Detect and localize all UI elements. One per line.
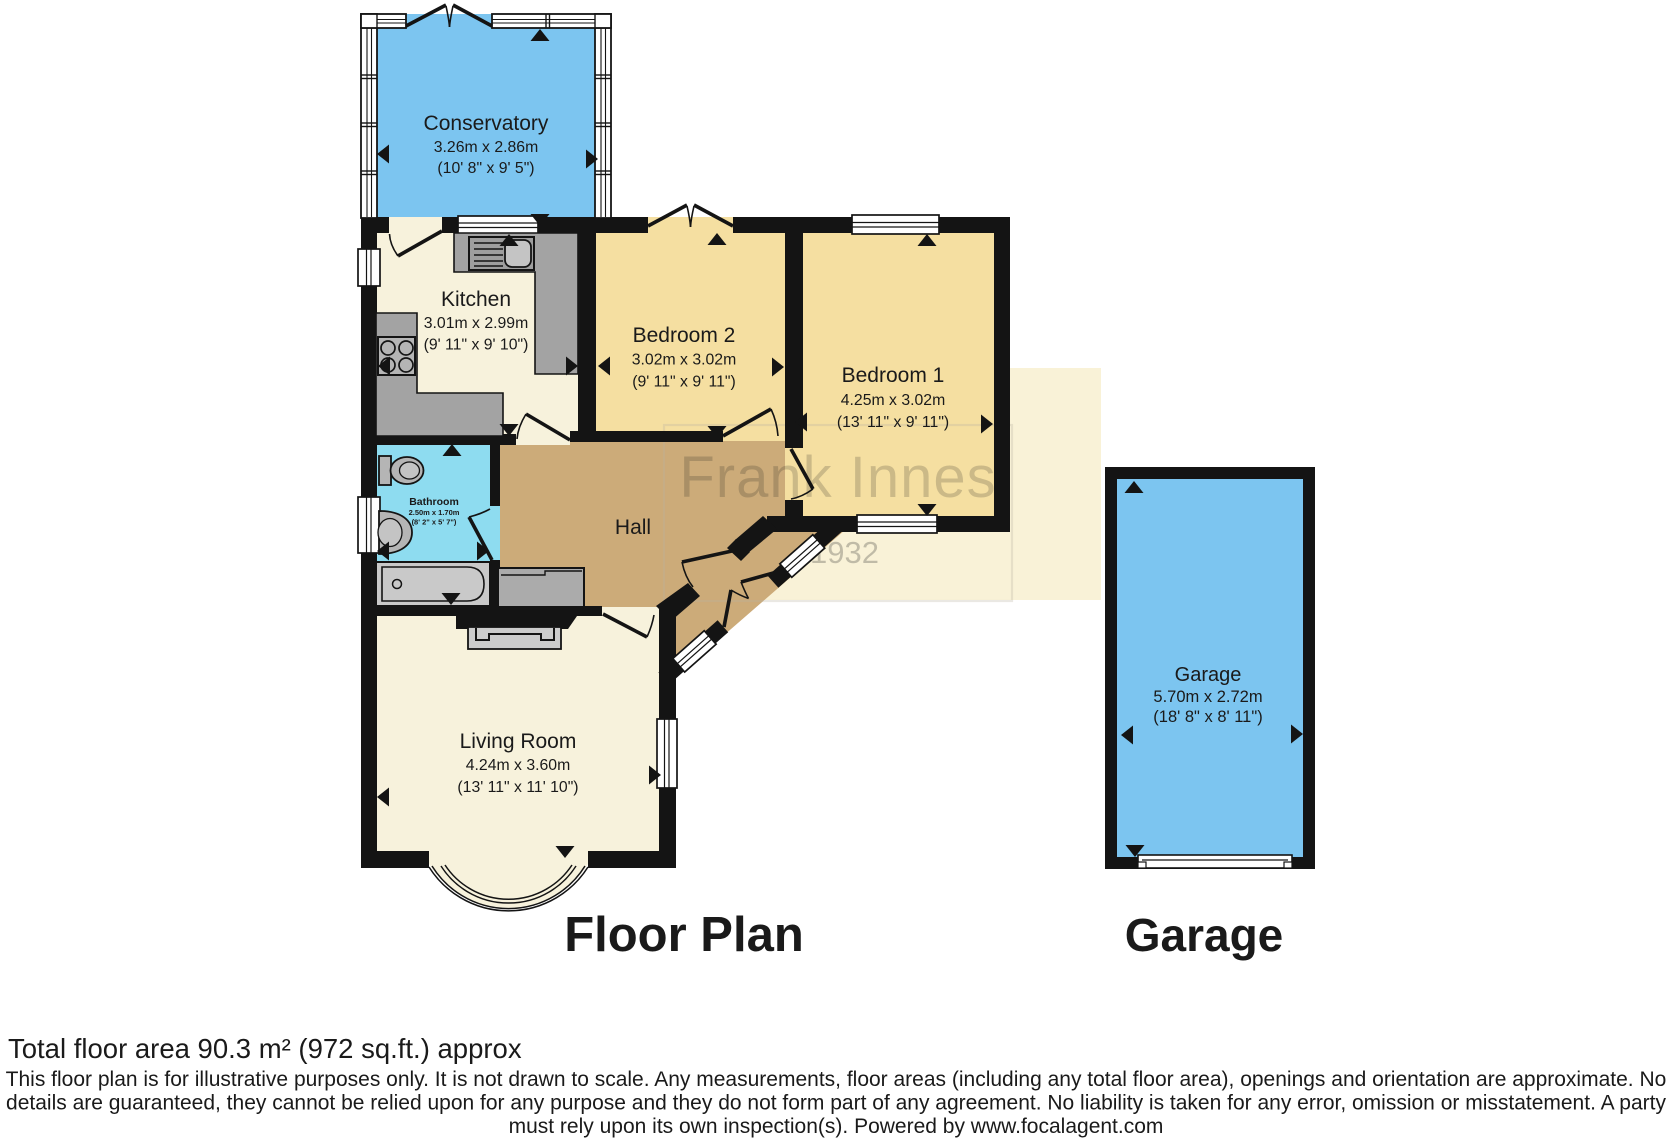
svg-text:Total floor area 90.3 m² (972: Total floor area 90.3 m² (972 sq.ft.) ap… (8, 1033, 522, 1064)
svg-text:Living Room: Living Room (460, 730, 577, 753)
svg-text:Conservatory: Conservatory (424, 112, 549, 135)
svg-text:details are guaranteed, they c: details are guaranteed, they cannot be r… (6, 1092, 1666, 1115)
svg-text:Frank Innes: Frank Innes (679, 445, 996, 510)
svg-text:3.26m x 2.86m: 3.26m x 2.86m (434, 139, 539, 156)
svg-text:This floor plan is for illustr: This floor plan is for illustrative purp… (6, 1068, 1667, 1091)
svg-text:2.50m x 1.70m: 2.50m x 1.70m (409, 508, 460, 517)
svg-text:Bedroom 2: Bedroom 2 (633, 324, 736, 347)
svg-text:must rely upon its own inspect: must rely upon its own inspection(s). Po… (509, 1115, 1164, 1138)
svg-text:Garage: Garage (1175, 664, 1242, 686)
svg-text:(13' 11" x 9' 11"): (13' 11" x 9' 11") (837, 414, 949, 431)
svg-text:(10' 8" x 9' 5"): (10' 8" x 9' 5") (437, 160, 534, 177)
svg-text:Hall: Hall (615, 516, 651, 539)
svg-text:4.24m x 3.60m: 4.24m x 3.60m (466, 757, 571, 774)
svg-text:Garage: Garage (1125, 909, 1284, 961)
svg-text:Bedroom 1: Bedroom 1 (842, 364, 945, 387)
svg-text:Bathroom: Bathroom (409, 496, 459, 508)
svg-text:Kitchen: Kitchen (441, 288, 511, 311)
svg-text:Floor Plan: Floor Plan (564, 908, 804, 962)
svg-text:3.02m x 3.02m: 3.02m x 3.02m (632, 352, 737, 369)
svg-text:4.25m x 3.02m: 4.25m x 3.02m (841, 392, 946, 409)
svg-text:(13' 11" x 11' 10"): (13' 11" x 11' 10") (457, 779, 578, 796)
svg-text:3.01m x 2.99m: 3.01m x 2.99m (424, 315, 529, 332)
svg-text:5.70m x 2.72m: 5.70m x 2.72m (1153, 688, 1262, 706)
svg-text:(8' 2" x 5' 7"): (8' 2" x 5' 7") (412, 518, 457, 527)
svg-text:(9' 11" x 9' 11"): (9' 11" x 9' 11") (632, 374, 736, 391)
svg-text:(9' 11" x 9' 10"): (9' 11" x 9' 10") (424, 337, 529, 354)
svg-text:(18' 8" x 8' 11"): (18' 8" x 8' 11") (1153, 708, 1262, 726)
